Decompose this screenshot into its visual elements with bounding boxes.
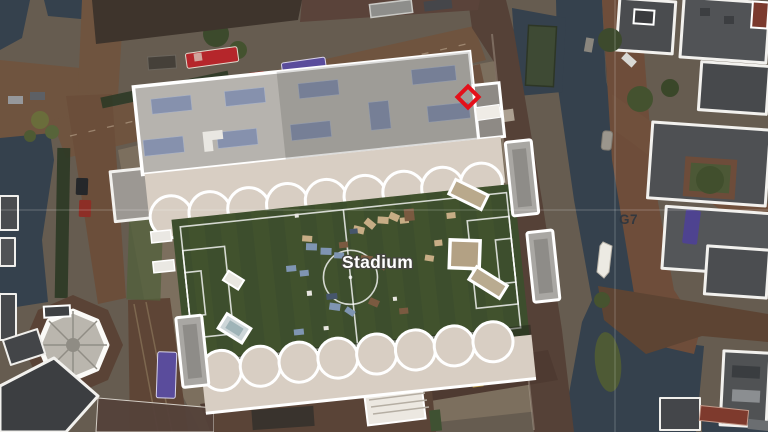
black-car-icon: [76, 178, 89, 195]
stadium-label: Stadium: [342, 252, 413, 272]
parked-car: [8, 96, 23, 104]
map-canvas[interactable]: Stadium G7: [0, 0, 768, 432]
stall: [151, 230, 172, 243]
west-buildings: [0, 196, 18, 266]
pontoon-barge: [525, 25, 556, 86]
barge-icon: [148, 55, 177, 70]
gray-boat-icon: [601, 131, 613, 151]
grid-cell-label: G7: [619, 212, 638, 227]
stadium-ne-walkway: [475, 104, 501, 120]
red-car-icon: [79, 200, 92, 217]
white-framed-court: [449, 240, 480, 269]
stall: [153, 260, 175, 273]
green-van: [429, 409, 442, 431]
parked-car: [30, 92, 45, 100]
purple-bus-icon: [156, 352, 177, 399]
satellite-map-viewport[interactable]: Stadium G7: [0, 0, 768, 432]
